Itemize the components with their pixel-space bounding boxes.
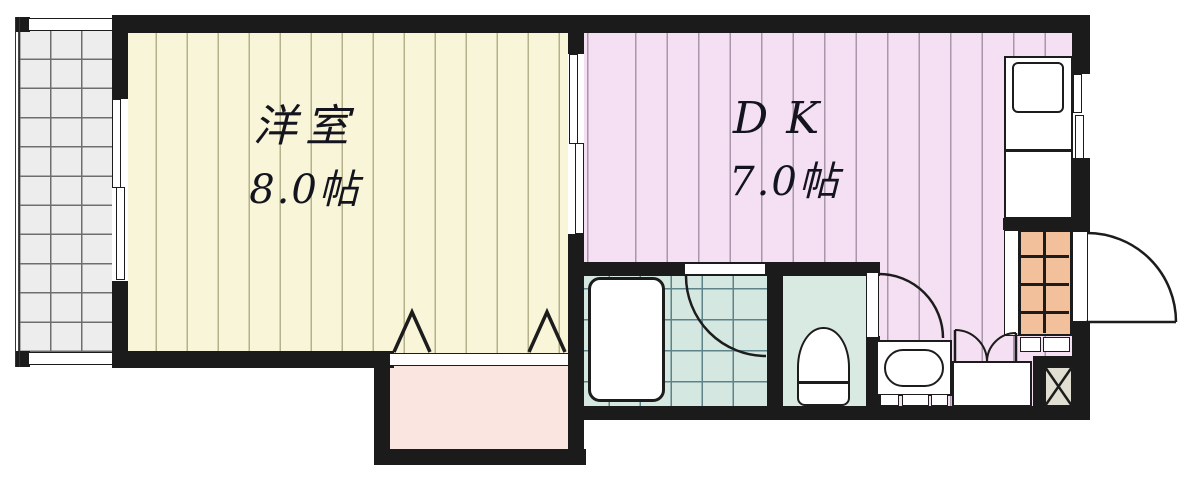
wall-right-1 bbox=[1072, 15, 1090, 76]
kitchen-counter-divider bbox=[1005, 149, 1072, 152]
toilet-tank-line bbox=[799, 381, 848, 384]
kitchen-sink bbox=[1012, 62, 1064, 113]
bathroom-door-leaf bbox=[684, 263, 766, 275]
wall-west-bottom bbox=[112, 351, 394, 368]
balcony-window-slat-2 bbox=[116, 187, 125, 280]
bathtub bbox=[588, 277, 665, 402]
entrance-step-1 bbox=[1020, 337, 1041, 352]
shoe-cabinet-hline-3 bbox=[1021, 311, 1069, 314]
wall-bottom bbox=[568, 406, 1090, 420]
kitchen-window-slat-2 bbox=[1075, 115, 1084, 159]
dk-label: DK 7.0帖 bbox=[655, 92, 915, 206]
shoe-cabinet-hline-2 bbox=[1021, 283, 1069, 286]
closet bbox=[388, 364, 570, 452]
partition-sliding-door-slat-2 bbox=[575, 143, 584, 234]
pipe-space bbox=[1044, 366, 1073, 407]
entrance-door-gap bbox=[1072, 231, 1088, 322]
wall-bath-toilet bbox=[767, 262, 783, 420]
shoe-cabinet-front bbox=[1004, 230, 1019, 336]
balcony-rail-top bbox=[28, 18, 113, 31]
dk-name: DK bbox=[655, 92, 915, 146]
shoe-cabinet-hline-1 bbox=[1021, 255, 1069, 258]
washbasin-bowl bbox=[884, 349, 944, 387]
balcony bbox=[19, 30, 113, 352]
entrance-step-2 bbox=[1043, 337, 1070, 352]
western-room-size: 8.0帖 bbox=[160, 166, 450, 215]
wall-right-3 bbox=[1072, 157, 1090, 232]
washbasin-drawer-2 bbox=[902, 394, 929, 406]
wall-closet-bottom bbox=[374, 449, 586, 465]
balcony-rail-bottom bbox=[28, 352, 113, 365]
partition-sliding-door-slat-1 bbox=[569, 54, 578, 144]
wall-center-upper bbox=[568, 15, 584, 56]
wall-left-upper bbox=[112, 15, 128, 101]
balcony-outer-edge bbox=[15, 17, 20, 367]
kitchen-base-band bbox=[1003, 218, 1073, 230]
toilet bbox=[797, 327, 850, 406]
washbasin-drawer-3 bbox=[931, 394, 948, 406]
dk-size: 7.0帖 bbox=[655, 158, 915, 207]
entrance-door-arc bbox=[1087, 233, 1176, 322]
closet-door-band bbox=[389, 353, 569, 366]
toilet-door-leaf bbox=[866, 272, 879, 338]
western-room-name: 洋室 bbox=[160, 100, 450, 154]
washbasin-drawer-1 bbox=[880, 394, 899, 406]
floor-plan: 洋室 8.0帖 DK 7.0帖 bbox=[0, 0, 1199, 487]
wall-top bbox=[112, 15, 1090, 33]
wall-center-lower bbox=[568, 232, 584, 465]
kitchen-window-slat-1 bbox=[1073, 74, 1082, 113]
balcony-window-slat-1 bbox=[112, 99, 121, 188]
western-room-label: 洋室 8.0帖 bbox=[160, 100, 450, 214]
laundry-closet bbox=[952, 361, 1032, 407]
shoe-cabinet bbox=[1019, 230, 1072, 336]
